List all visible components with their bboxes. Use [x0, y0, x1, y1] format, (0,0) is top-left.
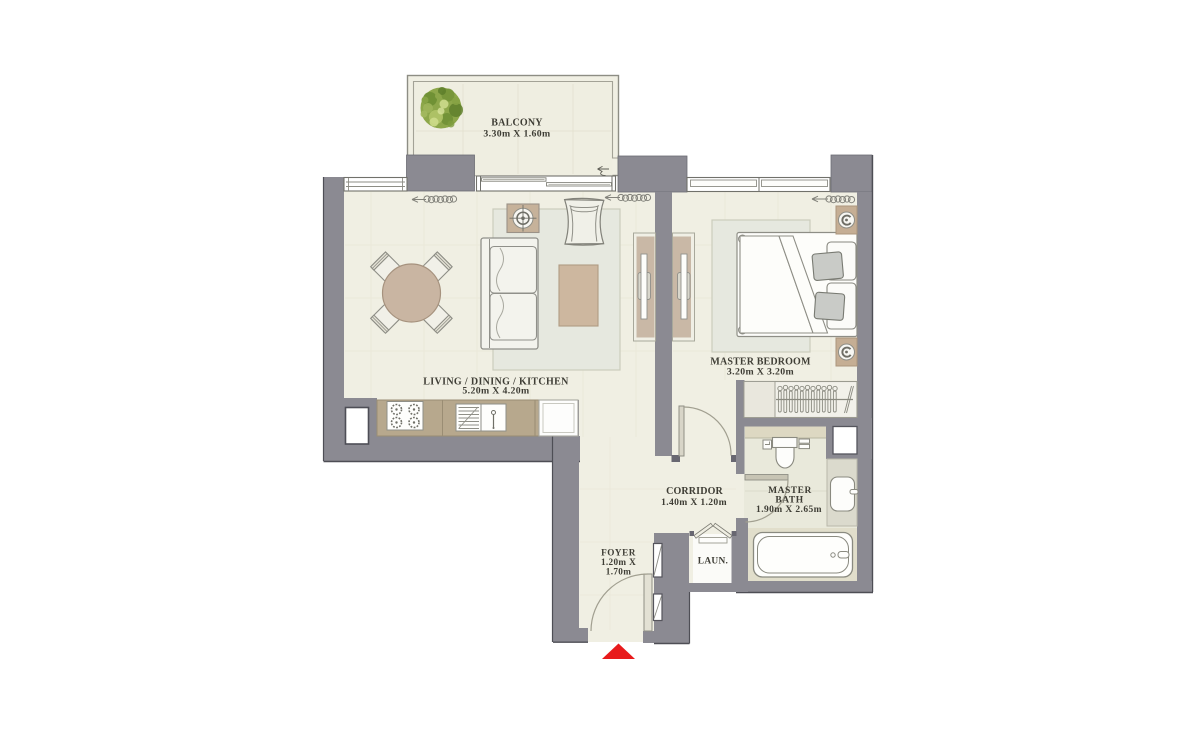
svg-text:FOYER: FOYER: [601, 548, 636, 558]
svg-text:MASTER: MASTER: [768, 486, 812, 496]
svg-text:1.90m X 2.65m: 1.90m X 2.65m: [756, 505, 822, 515]
svg-text:3.20m X 3.20m: 3.20m X 3.20m: [727, 367, 794, 378]
svg-text:3.30m X 1.60m: 3.30m X 1.60m: [483, 129, 550, 140]
svg-text:1.20m X: 1.20m X: [601, 557, 636, 567]
svg-text:1.40m X 1.20m: 1.40m X 1.20m: [661, 497, 727, 508]
svg-text:CORRIDOR: CORRIDOR: [666, 486, 723, 497]
svg-text:BALCONY: BALCONY: [491, 118, 543, 129]
svg-text:5.20m X 4.20m: 5.20m X 4.20m: [462, 386, 529, 397]
svg-text:LAUN.: LAUN.: [698, 557, 728, 567]
svg-text:BATH: BATH: [775, 496, 803, 506]
svg-text:1.70m: 1.70m: [606, 567, 631, 577]
